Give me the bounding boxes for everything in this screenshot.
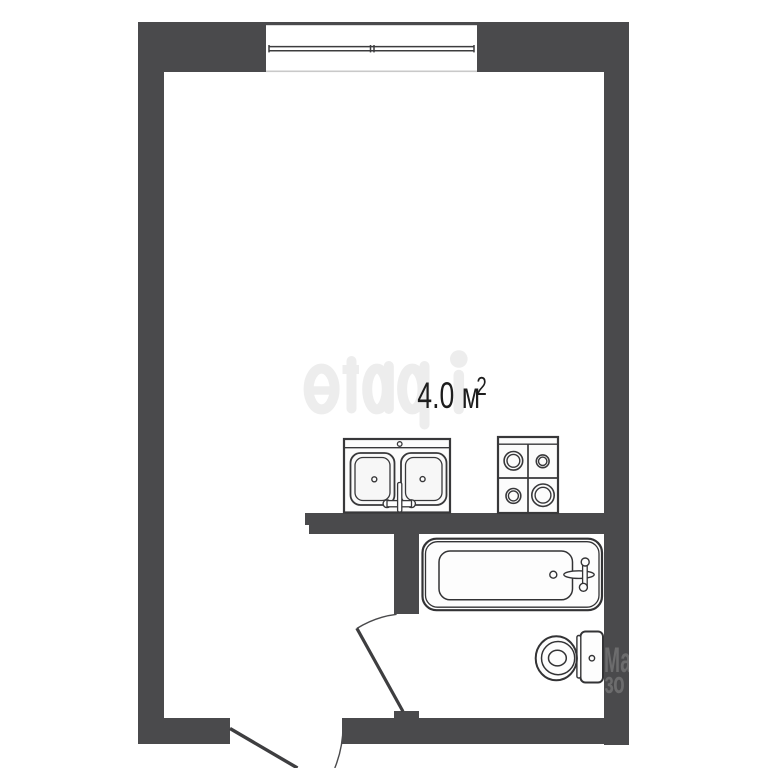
svg-text:4.0 м2: 4.0 м2 [417,371,487,416]
svg-text:зо: зо [605,666,625,700]
